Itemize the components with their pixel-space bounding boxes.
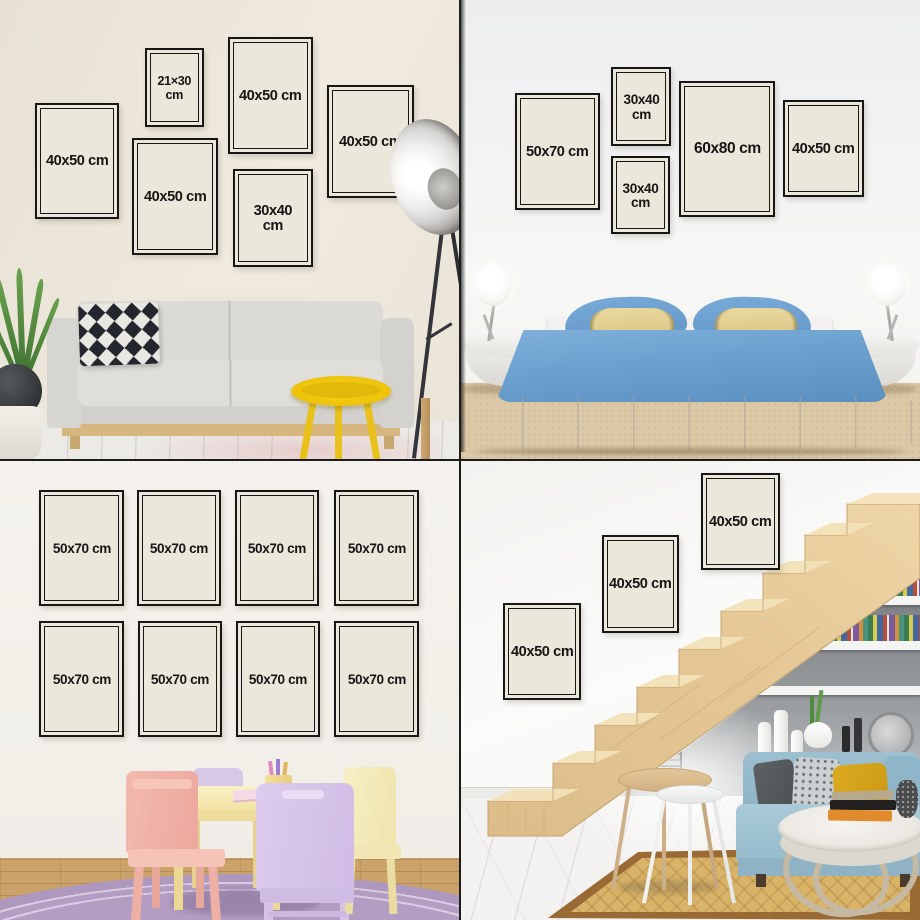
quadrant-bedroom: 50x70 cm 30x40 cm 30x40 cm 60x80 cm 40x5… <box>460 0 920 460</box>
frame-size-label: 50x70 cm <box>52 541 110 555</box>
quadrant-stair-living-room: 40x50 cm 40x50 cm 40x50 cm <box>460 460 920 920</box>
frame-50x70: 50x70 cm <box>39 621 124 737</box>
frame-50x70: 50x70 cm <box>334 490 419 606</box>
stool-leg <box>335 400 342 460</box>
frame-size-label: 21×30 cm <box>158 74 191 101</box>
frame-size-label: 50x70 cm <box>347 541 405 555</box>
frame-30x40: 30x40 cm <box>611 156 670 234</box>
dark-vase <box>896 780 918 818</box>
quadrant-kids-room: 50x70 cm 50x70 cm 50x70 cm 50x70 cm 50x7… <box>0 460 460 920</box>
chair-leg <box>152 862 160 908</box>
frame-size-label: 50x70 cm <box>248 541 306 555</box>
frame-50x70: 50x70 cm <box>515 93 600 210</box>
frame-50x70: 50x70 cm <box>137 490 221 606</box>
frame-50x70: 50x70 cm <box>236 621 320 737</box>
kids-chair-pink-seat <box>128 849 225 867</box>
collage-horizontal-seam <box>0 459 920 461</box>
sofa-leg <box>70 436 80 449</box>
frame-size-label: 50x70 cm <box>52 672 110 686</box>
frame-size-label: 50x70 cm <box>150 541 208 555</box>
kids-chair-lavender-front <box>256 783 354 891</box>
chair-rail <box>268 911 346 917</box>
frame-50x70: 50x70 cm <box>138 621 222 737</box>
frame-40x50: 40x50 cm <box>503 603 581 700</box>
frame-size-label: 40x50 cm <box>511 644 573 659</box>
frame-size-label: 40x50 cm <box>144 189 206 204</box>
frame-50x70: 50x70 cm <box>235 490 319 606</box>
white-table-leg <box>688 802 692 905</box>
frame-40x50: 40x50 cm <box>783 100 864 197</box>
sofa-armrest-left <box>47 318 81 428</box>
frame-size-label: 50x70 cm <box>347 672 405 686</box>
frame-40x50: 40x50 cm <box>132 138 218 255</box>
stool-top-recess <box>301 382 381 398</box>
frame-30x40: 30x40 cm <box>611 67 671 146</box>
ball-lamp-left <box>474 264 512 306</box>
frame-size-label: 40x50 cm <box>609 576 671 591</box>
bed-base <box>468 396 912 450</box>
frame-size-label: 30x40 cm <box>254 203 293 234</box>
lamp-wood-pole <box>421 398 430 460</box>
kids-chair-lavender-seat <box>260 888 354 903</box>
book-stack-bottom <box>828 809 892 821</box>
white-side-table-top <box>656 785 724 804</box>
frame-30x40: 30x40 cm <box>233 169 313 267</box>
frame-60x80: 60x80 cm <box>679 81 775 217</box>
frame-size-label: 30x40 cm <box>623 181 659 210</box>
frame-size-label: 40x50 cm <box>792 141 854 156</box>
sofa-leg <box>384 436 394 449</box>
bed-shadow <box>474 448 906 455</box>
book-stack-middle <box>830 800 896 810</box>
frame-size-label: 40x50 cm <box>709 514 771 529</box>
frame-size-label: 50x70 cm <box>249 672 307 686</box>
quadrant-living-room: 40x50 cm 21×30 cm 40x50 cm 40x50 cm 30x4… <box>0 0 460 460</box>
frame-40x50: 40x50 cm <box>701 473 780 570</box>
frame-40x50: 40x50 cm <box>602 535 679 633</box>
white-pot <box>0 406 42 460</box>
frame-21x30: 21×30 cm <box>145 48 204 127</box>
chair-leg <box>196 862 204 908</box>
frame-size-label: 40x50 cm <box>46 153 108 168</box>
frame-size-label: 50x70 cm <box>526 144 588 159</box>
frame-40x50: 40x50 cm <box>228 37 313 154</box>
kids-chair-pink-slat <box>132 779 192 789</box>
frame-size-label: 60x80 cm <box>694 141 761 157</box>
frame-size-label: 30x40 cm <box>623 92 659 121</box>
triangle-pattern-pillow <box>78 302 160 367</box>
frame-size-label: 50x70 cm <box>151 672 209 686</box>
sofa-wood-base <box>62 424 400 436</box>
frame-size-mockup-collage: 40x50 cm 21×30 cm 40x50 cm 40x50 cm 30x4… <box>0 0 920 920</box>
frame-40x50: 40x50 cm <box>35 103 119 219</box>
ball-lamp-right <box>868 264 906 306</box>
frame-50x70: 50x70 cm <box>334 621 419 737</box>
blue-mattress <box>496 330 888 402</box>
frame-size-label: 40x50 cm <box>239 88 301 103</box>
sofa-leg <box>756 874 766 887</box>
chair-handle-notch <box>282 790 324 799</box>
sofa-armrest-right <box>380 318 414 428</box>
frame-50x70: 50x70 cm <box>39 490 124 606</box>
table-shadow <box>618 880 718 894</box>
